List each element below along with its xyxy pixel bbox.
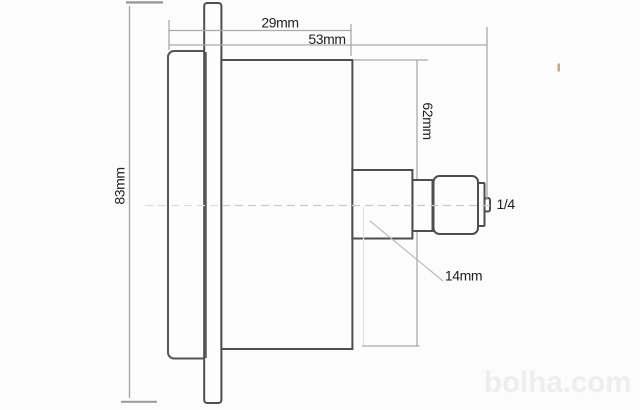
svg-text:bolha.com: bolha.com — [484, 366, 632, 399]
svg-text:62mm: 62mm — [420, 102, 436, 139]
svg-text:1/4: 1/4 — [497, 196, 516, 212]
svg-text:14mm: 14mm — [445, 268, 482, 284]
svg-text:83mm: 83mm — [112, 167, 128, 204]
svg-text:29mm: 29mm — [261, 15, 298, 31]
